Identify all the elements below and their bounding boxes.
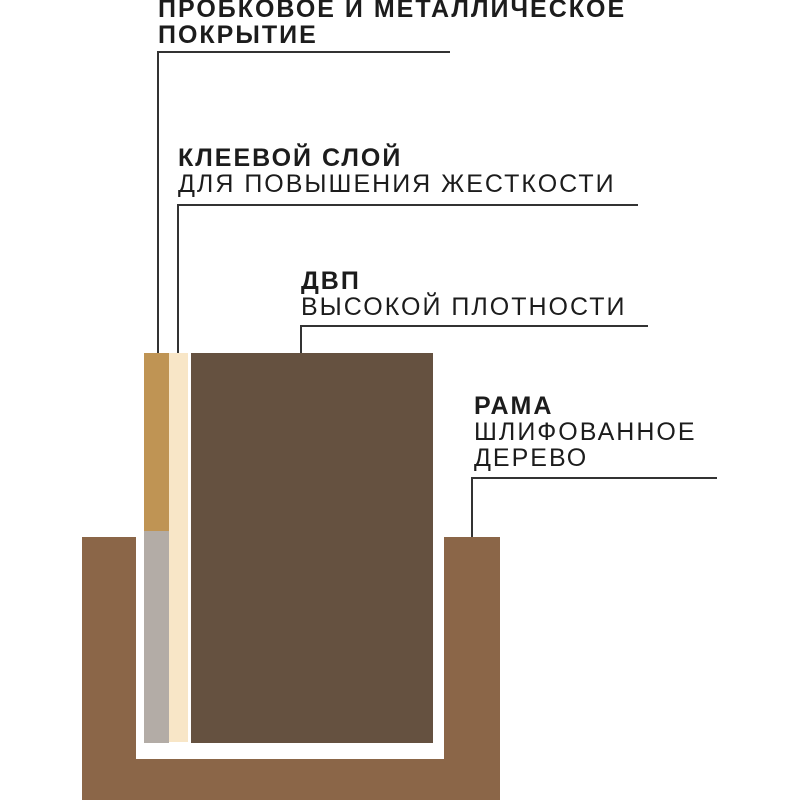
- leader-line-vertical-glue: [177, 204, 179, 353]
- callout-glue-title: КЛЕЕВОЙ СЛОЙ: [178, 145, 616, 171]
- glue-layer-strip: [169, 353, 188, 742]
- callout-glue-subtitle: ДЛЯ ПОВЫШЕНИЯ ЖЕСТКОСТИ: [178, 171, 616, 197]
- callout-hdf-title: ДВП: [301, 268, 626, 294]
- leader-line-horizontal-cork-metal: [157, 51, 450, 53]
- callout-cork-metal-subtitle: ПОКРЫТИЕ: [158, 22, 626, 48]
- leader-line-horizontal-hdf: [300, 325, 648, 327]
- callout-frame-subtitle: ШЛИФОВАННОЕ ДЕРЕВО: [474, 419, 736, 471]
- leader-line-vertical-frame: [471, 477, 473, 537]
- leader-line-horizontal-frame: [471, 477, 717, 479]
- callout-cork-metal-title: ПРОБКОВОЕ И МЕТАЛЛИЧЕСКОЕ: [158, 0, 626, 22]
- metal-coating-layer: [144, 531, 169, 743]
- callout-hdf-subtitle: ВЫСОКОЙ ПЛОТНОСТИ: [301, 294, 626, 320]
- callout-frame: РАМА ШЛИФОВАННОЕ ДЕРЕВО: [474, 393, 736, 471]
- callout-hdf-board: ДВП ВЫСОКОЙ ПЛОТНОСТИ: [301, 268, 626, 320]
- callout-frame-title: РАМА: [474, 393, 736, 419]
- leader-line-vertical-hdf: [300, 325, 302, 353]
- callout-glue-layer: КЛЕЕВОЙ СЛОЙ ДЛЯ ПОВЫШЕНИЯ ЖЕСТКОСТИ: [178, 145, 616, 197]
- hdf-board-panel: [191, 353, 433, 743]
- leader-line-vertical-cork-metal: [157, 51, 159, 353]
- frame-bottom-bar: [82, 759, 500, 800]
- cork-coating-layer: [144, 353, 169, 531]
- leader-line-horizontal-glue: [177, 204, 638, 206]
- callout-cork-metal-coating: ПРОБКОВОЕ И МЕТАЛЛИЧЕСКОЕ ПОКРЫТИЕ: [158, 0, 626, 48]
- infographic-canvas: ПРОБКОВОЕ И МЕТАЛЛИЧЕСКОЕ ПОКРЫТИЕ КЛЕЕВ…: [0, 0, 800, 800]
